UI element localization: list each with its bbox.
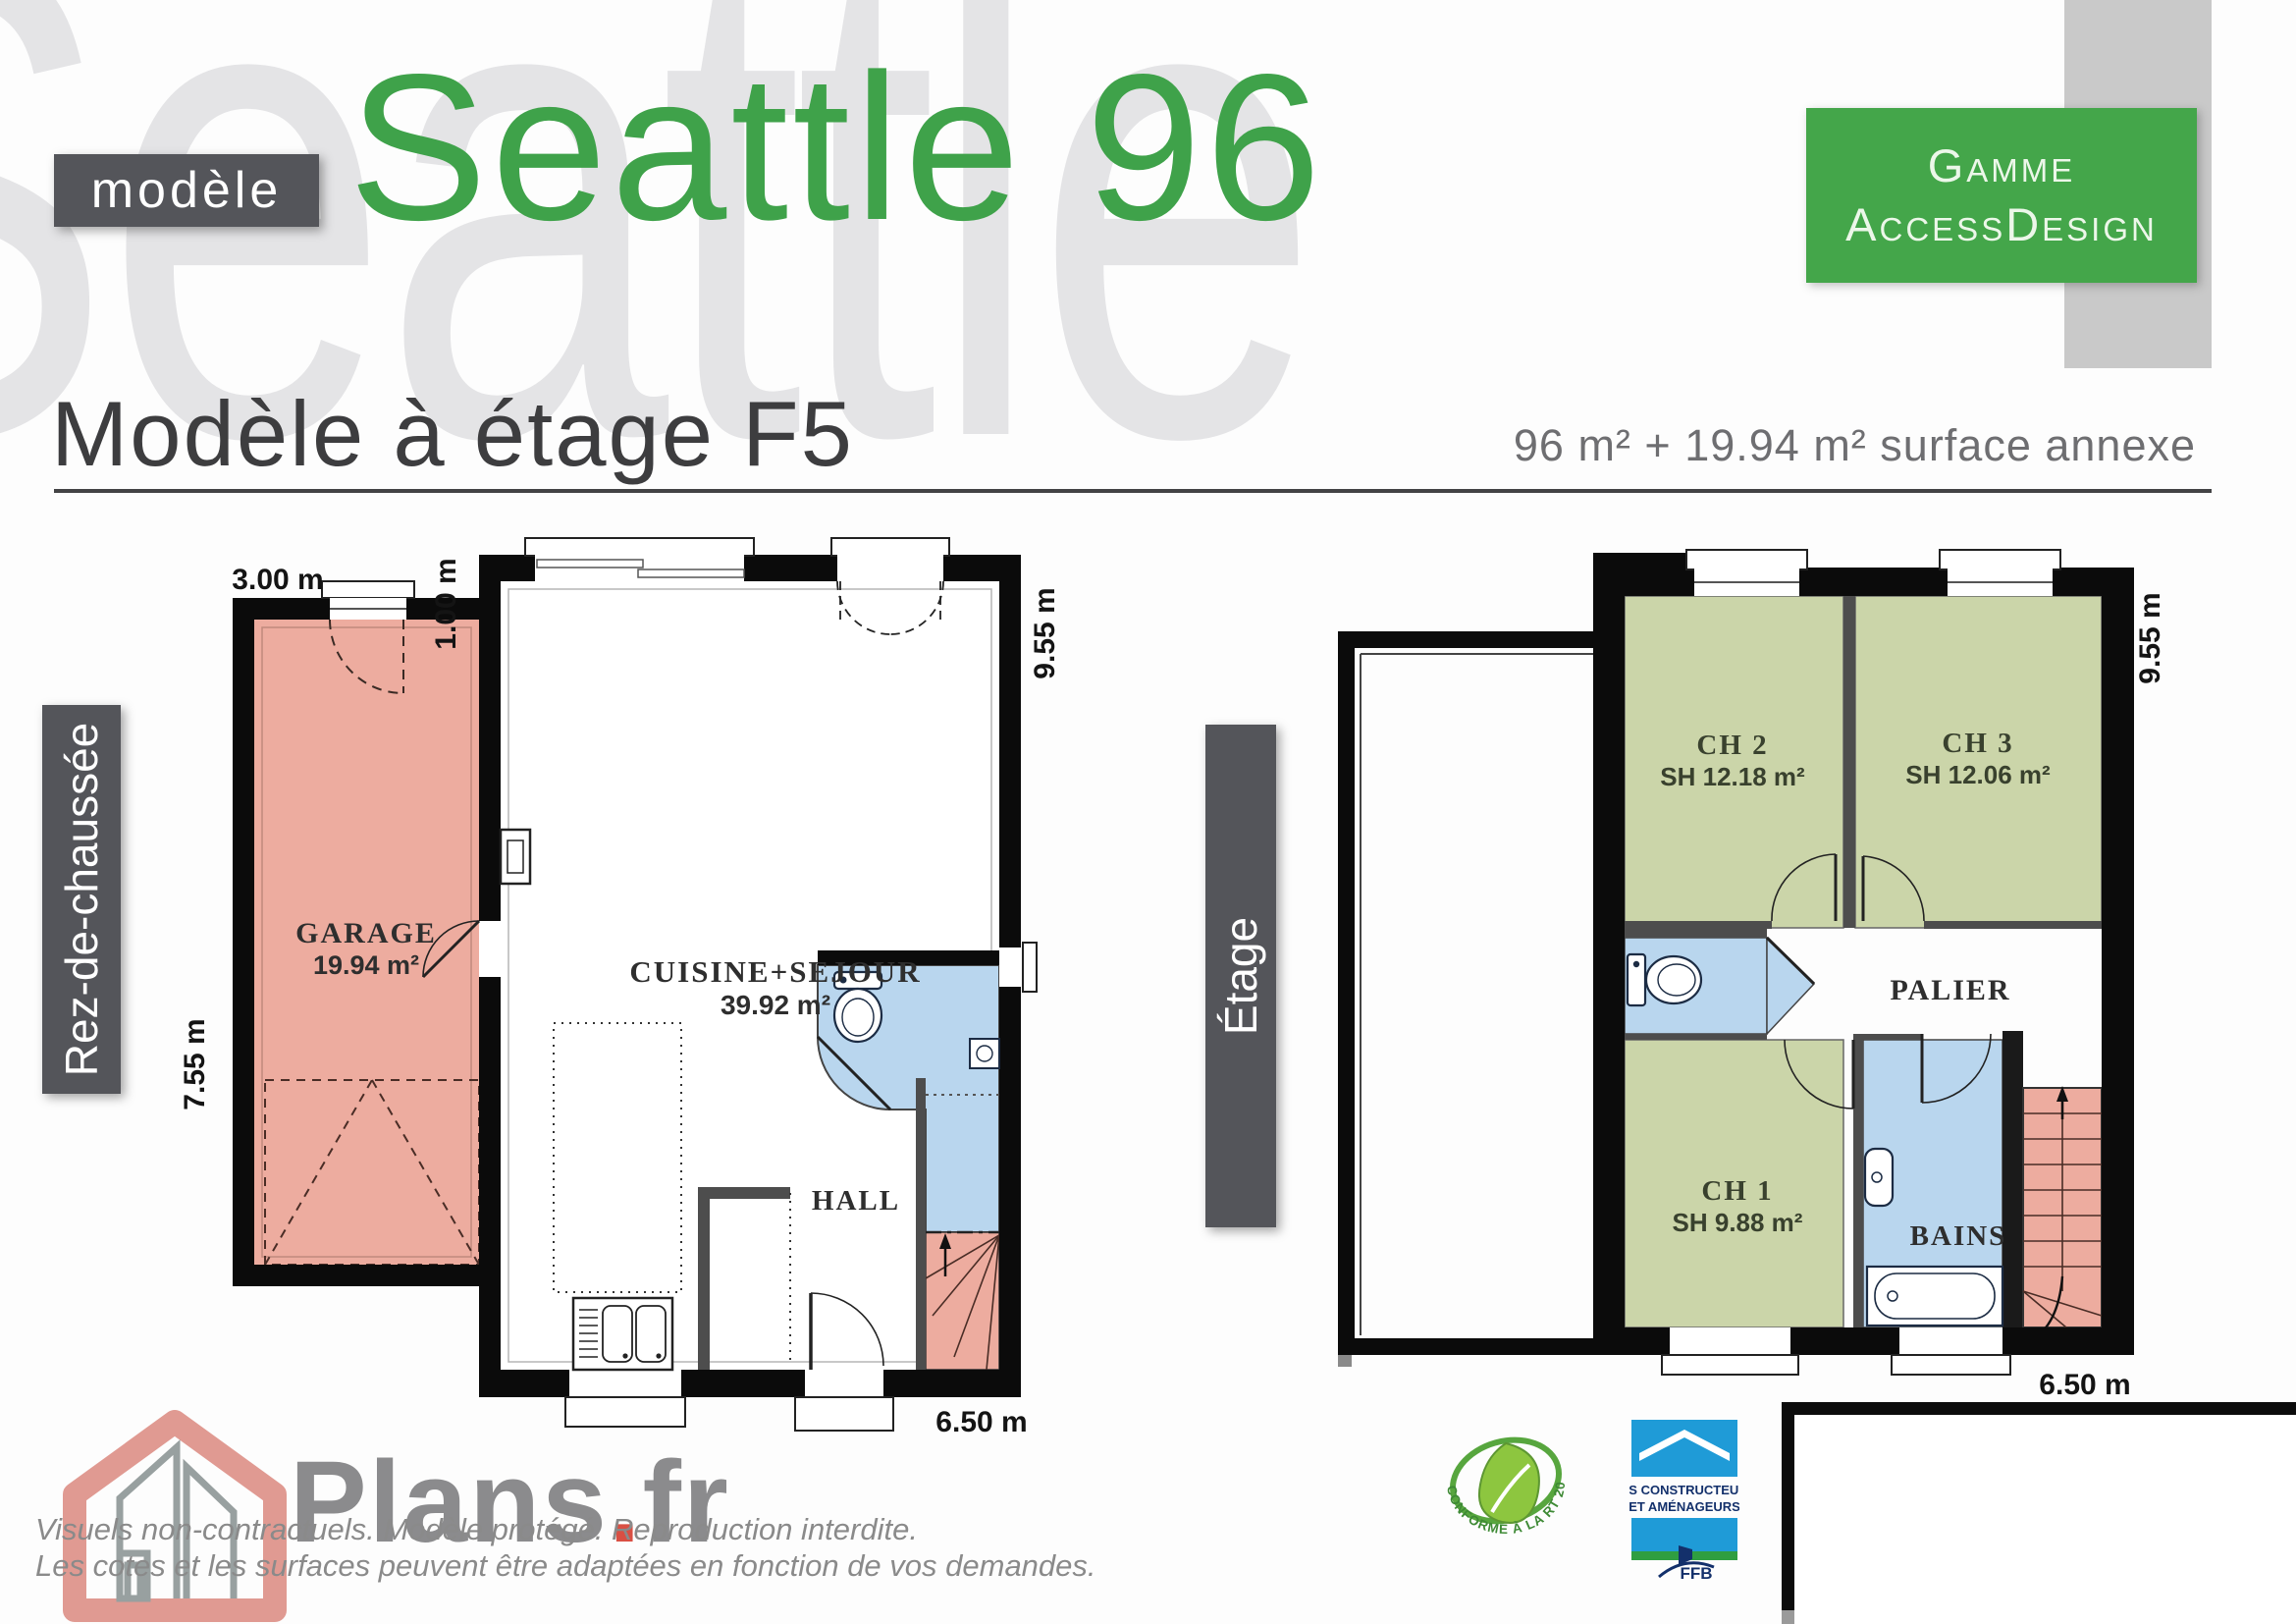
ch2-window	[1686, 550, 1807, 596]
garage-area: 19.94 m²	[313, 950, 419, 980]
bains-sink	[1865, 1149, 1893, 1206]
kitchen-living-label: CUISINE+SEJOUR	[629, 954, 921, 989]
ch2-label: CH 2	[1696, 730, 1768, 761]
kitchen-living-area: 39.92 m²	[721, 990, 830, 1020]
ffb-line2: ET AMÉNAGEURS	[1629, 1499, 1739, 1514]
bathtub	[1867, 1267, 2002, 1326]
dim-height-ground: 9.55 m	[1029, 587, 1061, 678]
signature-frame	[1782, 1402, 2296, 1624]
ch3-window	[1940, 550, 2060, 596]
ch2-area: SH 12.18 m²	[1660, 762, 1805, 791]
ch1-label: CH 1	[1701, 1175, 1773, 1207]
palier-label: PALIER	[1890, 974, 2010, 1006]
ffb-line1: LES CONSTRUCTEURS	[1629, 1483, 1739, 1497]
upper-floor-plan: CH 2 SH 12.18 m² CH 3 SH 12.06 m² CH 1 S…	[1178, 530, 2296, 1404]
signature-frame-stub	[1782, 1610, 1794, 1624]
garage-label: GARAGE	[295, 917, 437, 949]
dim-garage-depth: 7.55 m	[179, 1018, 211, 1110]
terrace	[1338, 631, 1593, 1367]
page: Seattle modèle Seattle 96 Gamme AccessDe…	[0, 0, 2296, 1624]
washbasin-ground	[970, 1039, 999, 1068]
electrical-panel	[501, 830, 530, 884]
ch1-window	[1662, 1327, 1798, 1375]
model-subtitle: Modèle à étage F5	[51, 381, 854, 487]
kitchen-window	[565, 1370, 685, 1427]
header-divider	[54, 489, 2212, 493]
stairs-upper	[2022, 1086, 2102, 1349]
ffb-acronym: FFB	[1680, 1564, 1712, 1583]
dim-garage-width: 3.00 m	[232, 564, 323, 596]
dim-width-upper: 6.50 m	[2039, 1369, 2130, 1401]
page-title: Seattle 96	[348, 34, 1325, 260]
ground-floor-label: Rez-de-chaussée	[57, 703, 106, 1096]
range-line1: Gamme	[1928, 136, 2076, 195]
rt2012-logo: CONFORME À LA RT 2012	[1435, 1432, 1577, 1564]
ch3-label: CH 3	[1942, 728, 2013, 759]
side-window	[999, 943, 1037, 992]
bay-window	[525, 538, 754, 581]
range-line2: AccessDesign	[1845, 195, 2158, 254]
model-tag: modèle	[54, 154, 319, 227]
stairs-ground	[926, 1232, 999, 1370]
ground-floor-plan: GARAGE 19.94 m² CUISINE+SEJOUR 39.92 m² …	[147, 530, 1139, 1448]
surface-summary: 96 m² + 19.94 m² surface annexe	[1514, 420, 2196, 471]
ch3-area: SH 12.06 m²	[1905, 760, 2051, 789]
bains-window	[1892, 1327, 2010, 1375]
disclaimer-line1: Visuels non-contractuels. Modèle protégé…	[35, 1512, 918, 1547]
ffb-logo: LES CONSTRUCTEURS ET AMÉNAGEURS FFB	[1629, 1420, 1739, 1587]
ch1-area: SH 9.88 m²	[1673, 1208, 1803, 1237]
toilet-upper	[1628, 954, 1701, 1005]
dim-height-upper: 9.55 m	[2134, 592, 2166, 683]
range-badge: Gamme AccessDesign	[1806, 108, 2197, 283]
kitchen-sink	[573, 1298, 672, 1370]
bains-label: BAINS	[1910, 1220, 2007, 1252]
dim-width-ground: 6.50 m	[935, 1406, 1027, 1438]
hall-label: HALL	[812, 1185, 900, 1217]
dim-setback: 1.00 m	[430, 558, 462, 649]
disclaimer-line2: Les cotes et les surfaces peuvent être a…	[35, 1548, 1096, 1584]
